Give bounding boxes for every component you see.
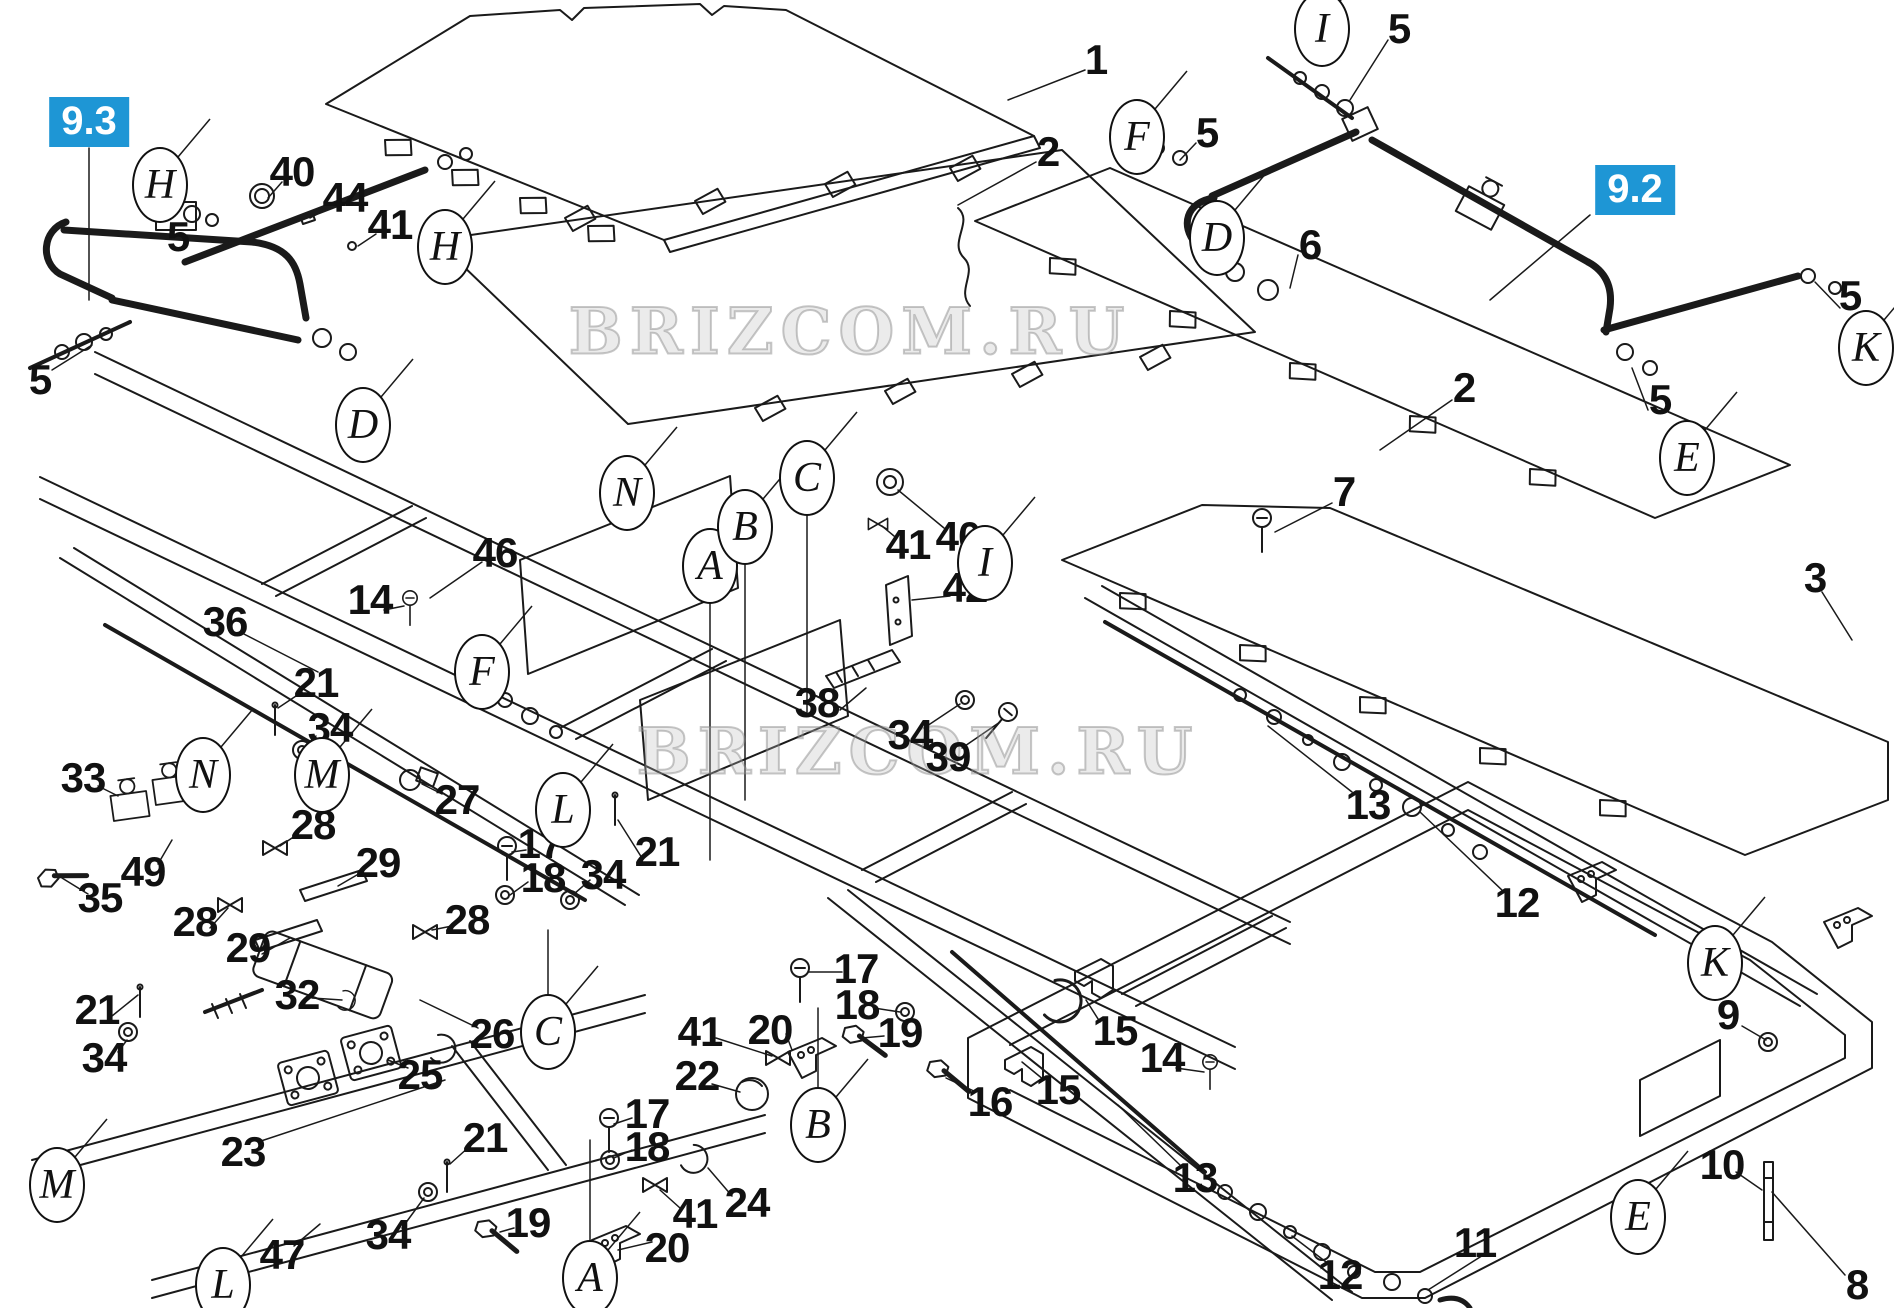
reference-balloon: A: [562, 1240, 618, 1308]
reference-balloon: N: [599, 455, 655, 531]
reference-balloon: N: [175, 737, 231, 813]
part-number-label: 22: [675, 1055, 720, 1097]
part-number-label: 38: [795, 682, 840, 724]
part-number-label: 25: [398, 1054, 443, 1096]
reference-balloon: H: [132, 147, 188, 223]
part-number-label: 34: [82, 1037, 127, 1079]
part-number-label: 14: [348, 579, 393, 621]
part-number-label: 41: [368, 204, 413, 246]
reference-balloon: K: [1838, 310, 1894, 386]
part-number-label: 10: [1700, 1144, 1745, 1186]
reference-balloon: E: [1610, 1179, 1666, 1255]
part-number-label: 40: [270, 151, 315, 193]
part-number-label: 2: [1037, 131, 1059, 173]
part-number-label: 20: [748, 1009, 793, 1051]
reference-balloon: M: [29, 1147, 85, 1223]
part-number-label: 46: [473, 532, 518, 574]
part-number-label: 11: [1454, 1222, 1496, 1264]
part-number-label: 15: [1093, 1010, 1138, 1052]
part-number-label: 7: [1333, 471, 1355, 513]
reference-balloon: F: [1109, 99, 1165, 175]
part-number-label: 5: [1388, 8, 1410, 50]
part-number-label: 26: [470, 1013, 515, 1055]
part-number-label: 5: [29, 359, 51, 401]
reference-balloon: K: [1687, 925, 1743, 1001]
reference-balloon: D: [335, 387, 391, 463]
part-number-label: 15: [1036, 1069, 1081, 1111]
part-number-label: 24: [725, 1182, 770, 1224]
part-number-label: 34: [366, 1214, 411, 1256]
part-number-label: 35: [78, 877, 123, 919]
part-number-label: 5: [167, 216, 189, 258]
reference-balloon: E: [1659, 420, 1715, 496]
part-number-label: 21: [635, 831, 680, 873]
part-number-label: 44: [323, 177, 368, 219]
part-number-label: 12: [1318, 1254, 1363, 1296]
part-number-label: 5: [1649, 379, 1671, 421]
part-number-label: 27: [435, 779, 480, 821]
part-number-label: 29: [356, 842, 401, 884]
part-number-label: 8: [1846, 1264, 1868, 1306]
part-number-label: 28: [445, 899, 490, 941]
part-number-label: 32: [275, 974, 320, 1016]
part-number-label: 28: [173, 901, 218, 943]
part-number-label: 21: [75, 989, 120, 1031]
part-number-label: 49: [121, 851, 166, 893]
part-number-label: 41: [673, 1193, 718, 1235]
part-number-label: 21: [463, 1117, 508, 1159]
part-number-label: 19: [878, 1012, 923, 1054]
part-number-label: 3: [1804, 557, 1826, 599]
part-number-label: 23: [221, 1131, 266, 1173]
part-number-label: 2: [1453, 367, 1475, 409]
part-number-label: 14: [1140, 1037, 1185, 1079]
part-number-label: 13: [1173, 1157, 1218, 1199]
reference-balloon: L: [535, 772, 591, 848]
part-number-label: 19: [506, 1202, 551, 1244]
reference-balloon: B: [790, 1087, 846, 1163]
part-number-label: 39: [926, 736, 971, 778]
part-number-label: 6: [1299, 224, 1321, 266]
part-number-label: 41: [678, 1011, 723, 1053]
reference-balloon: C: [779, 440, 835, 516]
part-number-label: 5: [1196, 112, 1218, 154]
reference-balloon: B: [717, 489, 773, 565]
reference-balloon: C: [520, 994, 576, 1070]
parts-diagram: BRIZCOM.RUBRIZCOM.RU12235555556789101112…: [0, 0, 1894, 1308]
reference-balloon: D: [1189, 200, 1245, 276]
section-badge: 9.2: [1595, 165, 1675, 215]
part-number-label: 47: [260, 1234, 305, 1276]
part-number-label: 34: [581, 854, 626, 896]
reference-balloon: H: [417, 209, 473, 285]
reference-balloon: I: [957, 525, 1013, 601]
part-number-label: 18: [521, 857, 566, 899]
section-badge: 9.3: [49, 97, 129, 147]
part-number-label: 41: [886, 524, 931, 566]
part-number-label: 12: [1495, 882, 1540, 924]
part-number-label: 36: [203, 601, 248, 643]
reference-balloon: F: [454, 634, 510, 710]
part-number-label: 1: [1085, 39, 1107, 81]
part-number-label: 18: [625, 1126, 670, 1168]
part-number-label: 33: [61, 757, 106, 799]
part-number-label: 16: [968, 1081, 1013, 1123]
part-number-label: 18: [835, 984, 880, 1026]
part-number-label: 13: [1346, 784, 1391, 826]
part-number-label: 29: [226, 927, 271, 969]
reference-balloon: M: [294, 737, 350, 813]
part-number-label: 21: [294, 662, 339, 704]
